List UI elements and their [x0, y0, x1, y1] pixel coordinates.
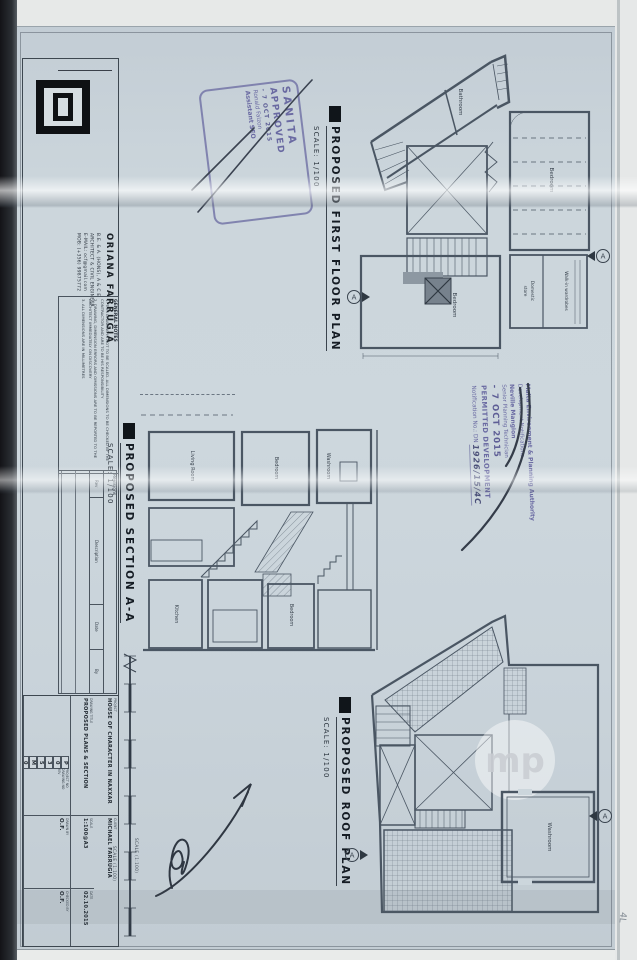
section-title-block: PROPOSED SECTION A-A SCALE: 1/100 [97, 423, 135, 623]
room-label-walkin-wardrobes: Walk-in wardrobes [563, 271, 569, 311]
scale-bar-label: SCALE (1:100) [112, 846, 117, 881]
scan-top-margin [17, 0, 637, 27]
section-marker-left: A [348, 291, 371, 304]
title-block-rule [58, 70, 112, 71]
room-label-roof-washroom: Washroom [546, 822, 552, 851]
room-label-bedroom2: Bedroom [288, 604, 294, 627]
scanned-architectural-sheet: { "colors": {"paper":"#ccd6dc","ink":"#4… [0, 0, 637, 960]
section-marker-right: A [587, 250, 610, 263]
margin-handwritten-note: 4L [616, 912, 627, 924]
room-label-domestic-store: store [522, 286, 528, 297]
drawing-title-cell: DRAWING TITLE PROPOSED PLANS & SECTION [71, 696, 94, 816]
handwritten-signature [138, 770, 258, 902]
number-labels: PROJECT NO DRAWING NO REV [54, 768, 69, 813]
title-bar-mark [329, 106, 341, 122]
rooflight-x-box [425, 278, 451, 304]
revisions-empty-row [75, 471, 89, 693]
scale-value: 1:100@A3 [82, 818, 88, 886]
rev-label: REV [57, 768, 61, 813]
number-boxes: P 0 3 5 M 0 0 2 - [57, 756, 69, 768]
architect-logo-inner [53, 93, 73, 121]
drawn-by-label: DRAWN BY [65, 818, 69, 886]
number-box: 3 [45, 756, 53, 769]
number-box: 0 [24, 756, 29, 769]
door-gap [518, 879, 532, 885]
paper-fold-band [0, 176, 637, 208]
signature-strokes [156, 784, 251, 896]
drawing-title-value: PROPOSED PLANS & SECTION [82, 698, 88, 813]
room-label-bathroom: Bathroom [457, 88, 463, 115]
drawn-by-cell: DRAWN BY O.F. [24, 816, 70, 889]
number-box: M [29, 756, 37, 769]
section-marker-letter: A [350, 852, 355, 860]
drawing-no-label: DRAWING NO [61, 768, 65, 813]
drawing-number-cell: PROJECT NO DRAWING NO REV P 0 3 5 M 0 0 … [24, 696, 70, 816]
section-arrow [587, 251, 595, 261]
project-no-label: PROJECT NO [65, 768, 69, 813]
paper-shadow-band [17, 890, 615, 924]
scale-label: SCALE [89, 818, 93, 886]
drawn-by-value: O.F. [58, 818, 64, 886]
revisions-col-by: By [90, 650, 103, 693]
roof-scale: SCALE: 1/100 [322, 717, 330, 779]
scale-cell: SCALE 1:100@A3 [71, 816, 94, 889]
paper-fold-band [0, 466, 637, 494]
general-note-3: 3. ALL DIMENSIONS ARE IN MILLIMETRES [81, 299, 86, 471]
section-marker-left: A [346, 849, 369, 862]
revisions-empty-row [61, 471, 75, 693]
section-arrow [362, 292, 370, 302]
dashed-level-line [140, 394, 235, 395]
drawing-title-label: DRAWING TITLE [89, 698, 93, 813]
section-marker-right: A [589, 810, 612, 823]
first-floor-title: PROPOSED FIRST FLOOR PLAN [326, 126, 341, 351]
door-gap [518, 789, 532, 795]
section-drawing: Living Room Bedroom Washroom Kitchen Bed… [135, 412, 380, 652]
architect-logo-icon [36, 80, 90, 134]
section-arrow [360, 850, 368, 860]
photo-watermark-text: mp [485, 741, 545, 781]
section-marker-letter: A [601, 253, 606, 261]
drawing-number-grid: PROJECT NO DRAWING NO REV P 0 3 5 M 0 0 … [54, 698, 69, 813]
number-box: 5 [37, 756, 45, 769]
room-label-domestic: Domestic [529, 281, 535, 302]
title-bar-mark [123, 423, 135, 439]
room-label-bedroom2: Bedroom [451, 293, 457, 318]
room-label-kitchen: Kitchen [173, 605, 179, 624]
section-marker-letter: A [603, 813, 608, 821]
section-marker-letter: A [352, 294, 357, 302]
